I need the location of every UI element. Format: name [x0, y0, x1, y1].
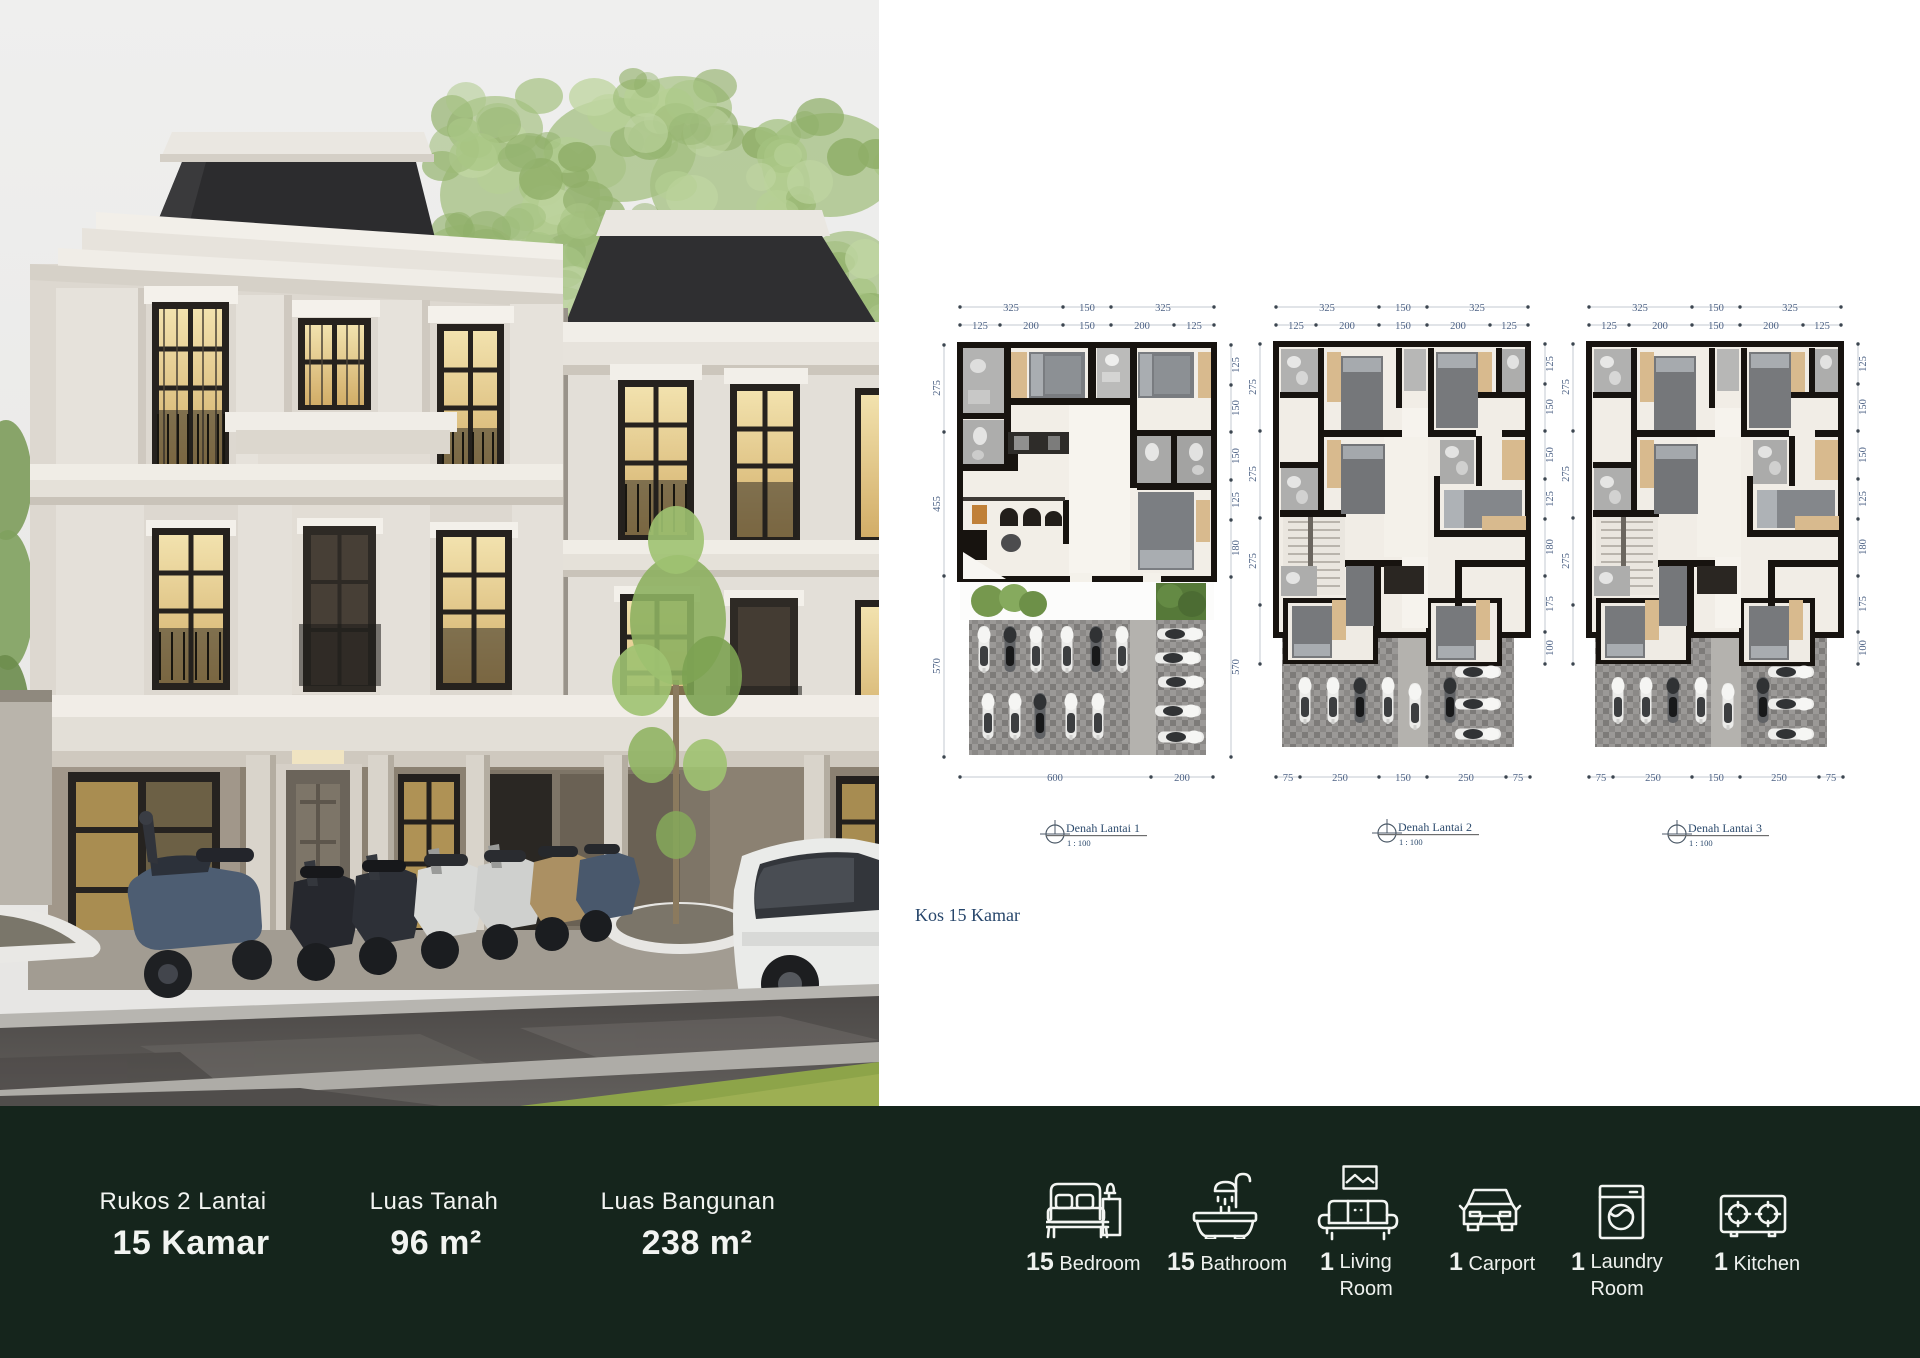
svg-text:150: 150: [1545, 447, 1556, 463]
svg-text:150: 150: [1231, 400, 1242, 416]
svg-text:175: 175: [1545, 596, 1556, 612]
svg-text:Denah Lantai 2: Denah Lantai 2: [1398, 820, 1472, 834]
svg-text:150: 150: [1395, 321, 1411, 332]
svg-text:1 : 100: 1 : 100: [1689, 838, 1713, 848]
svg-text:Kos 15 Kamar: Kos 15 Kamar: [915, 905, 1020, 925]
svg-text:75: 75: [1283, 773, 1294, 784]
svg-text:275: 275: [1248, 466, 1259, 482]
svg-text:325: 325: [1003, 303, 1019, 314]
svg-text:125: 125: [1545, 491, 1556, 507]
svg-text:275: 275: [932, 380, 943, 396]
svg-text:200: 200: [1450, 321, 1466, 332]
svg-text:125: 125: [1186, 321, 1202, 332]
svg-text:150: 150: [1231, 448, 1242, 464]
svg-text:125: 125: [1545, 356, 1556, 372]
svg-text:455: 455: [932, 496, 943, 512]
svg-text:150: 150: [1079, 303, 1095, 314]
svg-text:275: 275: [1248, 553, 1259, 569]
svg-text:125: 125: [1501, 321, 1517, 332]
svg-text:100: 100: [1545, 640, 1556, 656]
svg-text:1 : 100: 1 : 100: [1399, 837, 1423, 847]
svg-text:325: 325: [1155, 303, 1171, 314]
svg-text:200: 200: [1339, 321, 1355, 332]
svg-text:75: 75: [1513, 773, 1524, 784]
svg-text:325: 325: [1319, 303, 1335, 314]
svg-text:125: 125: [1288, 321, 1304, 332]
svg-text:150: 150: [1395, 773, 1411, 784]
svg-text:125: 125: [1231, 492, 1242, 508]
svg-text:325: 325: [1469, 303, 1485, 314]
svg-text:180: 180: [1231, 540, 1242, 556]
svg-text:275: 275: [1248, 379, 1259, 395]
svg-text:570: 570: [1231, 659, 1242, 675]
svg-text:200: 200: [1023, 321, 1039, 332]
svg-text:250: 250: [1458, 773, 1474, 784]
svg-text:600: 600: [1047, 773, 1063, 784]
svg-text:150: 150: [1545, 399, 1556, 415]
svg-text:200: 200: [1134, 321, 1150, 332]
svg-text:180: 180: [1545, 539, 1556, 555]
svg-text:150: 150: [1395, 303, 1411, 314]
svg-text:Denah Lantai 3: Denah Lantai 3: [1688, 821, 1762, 835]
svg-text:Denah Lantai 1: Denah Lantai 1: [1066, 821, 1140, 835]
svg-text:570: 570: [932, 658, 943, 674]
svg-text:150: 150: [1079, 321, 1095, 332]
svg-text:250: 250: [1332, 773, 1348, 784]
svg-text:125: 125: [972, 321, 988, 332]
svg-text:125: 125: [1231, 357, 1242, 373]
svg-text:200: 200: [1174, 773, 1190, 784]
svg-text:1 : 100: 1 : 100: [1067, 838, 1091, 848]
